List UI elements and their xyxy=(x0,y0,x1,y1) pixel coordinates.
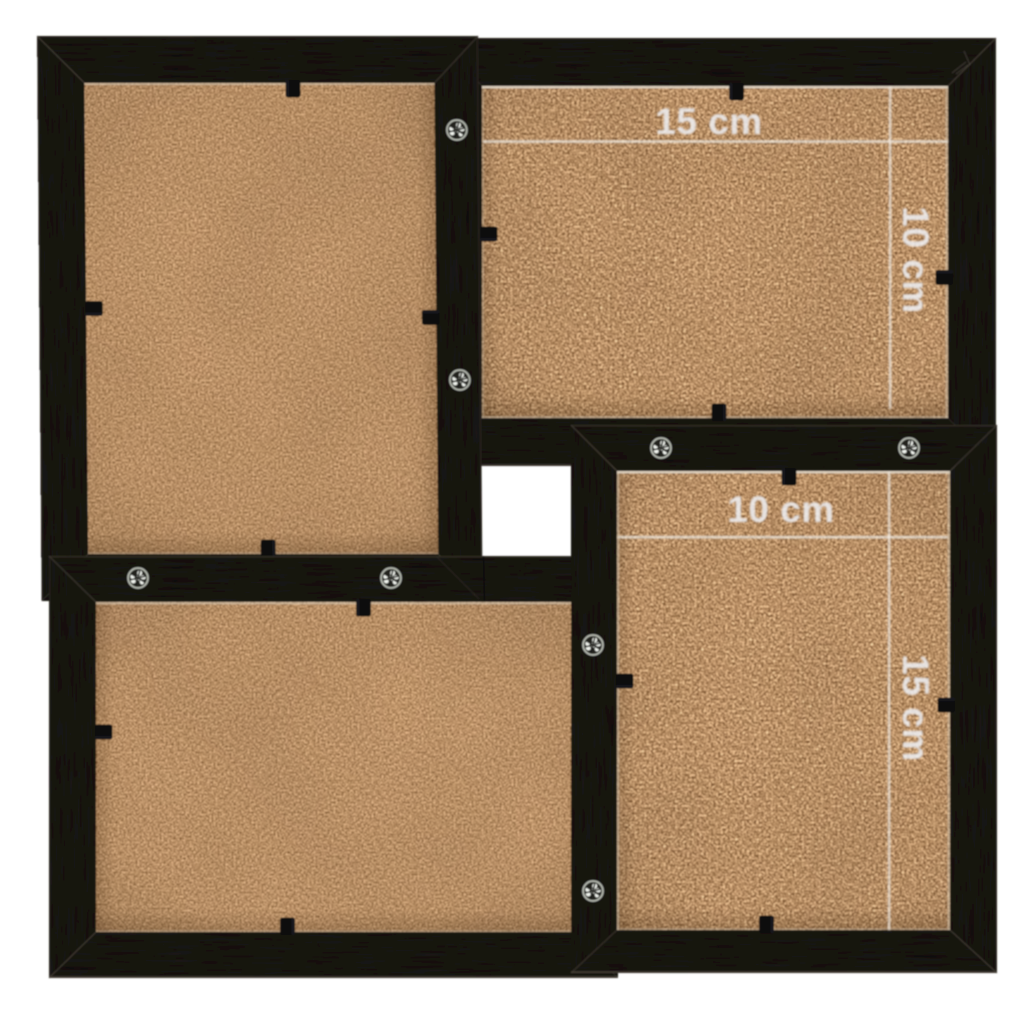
svg-text:15 cm: 15 cm xyxy=(895,654,936,761)
svg-text:10 cm: 10 cm xyxy=(895,206,936,313)
svg-text:15 cm: 15 cm xyxy=(655,101,762,142)
svg-text:10 cm: 10 cm xyxy=(727,489,834,530)
